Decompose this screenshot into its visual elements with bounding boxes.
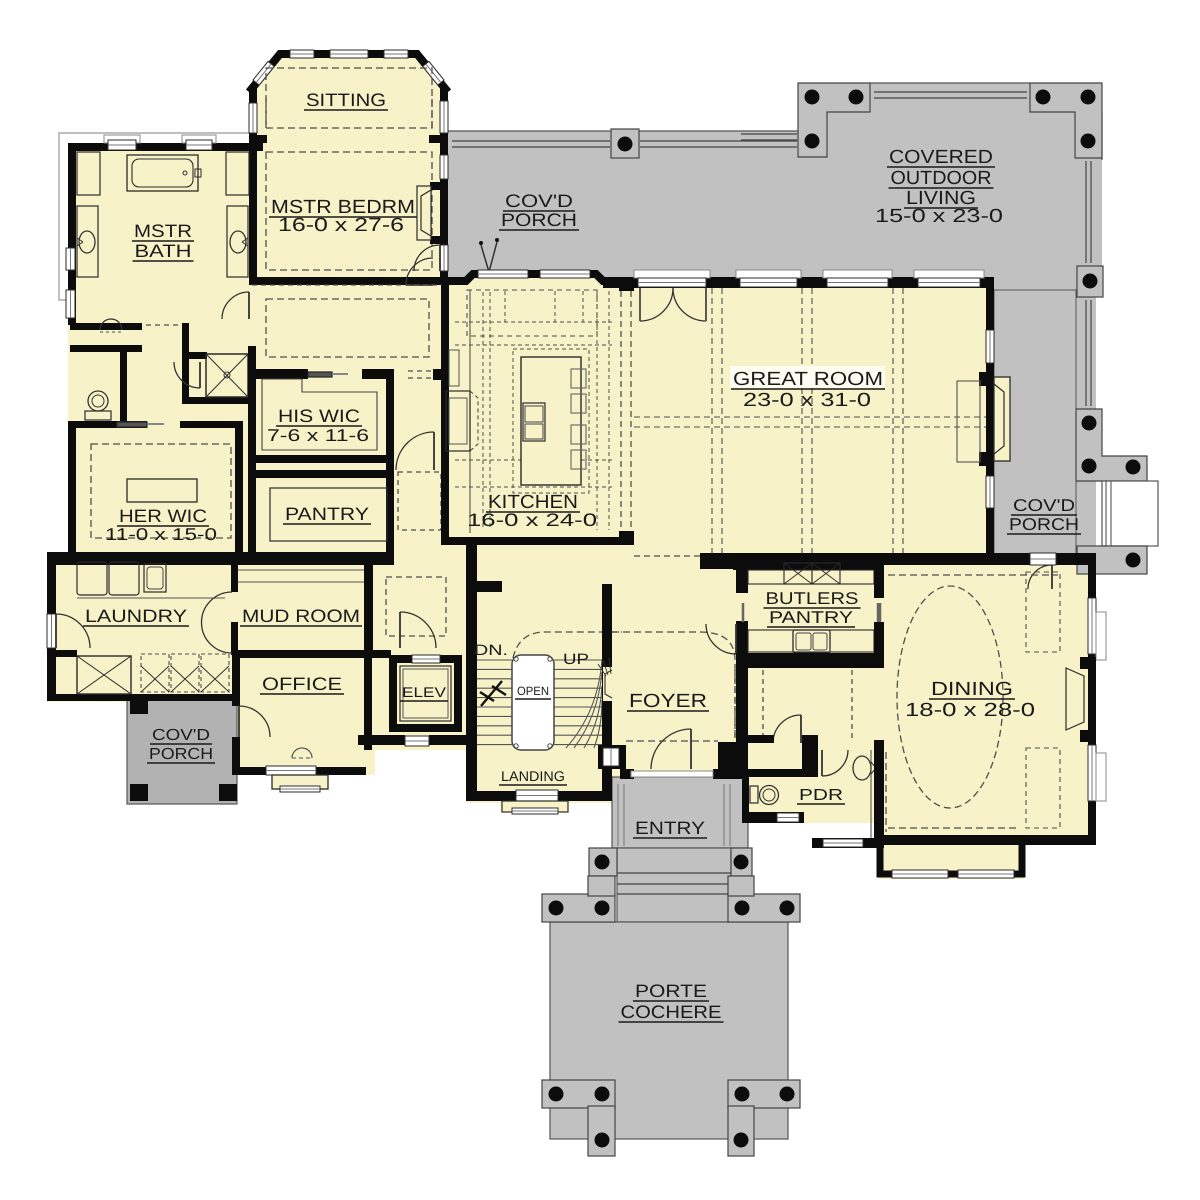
- svg-text:PORCH: PORCH: [149, 746, 213, 763]
- svg-text:COV'D: COV'D: [1013, 496, 1075, 515]
- svg-text:ELEV: ELEV: [402, 684, 447, 700]
- svg-text:23-0 x 31-0: 23-0 x 31-0: [743, 390, 871, 411]
- svg-text:11-0 x 15-0: 11-0 x 15-0: [105, 525, 217, 544]
- svg-text:PORTE: PORTE: [635, 981, 707, 1001]
- svg-text:COCHERE: COCHERE: [621, 1002, 722, 1022]
- svg-text:PDR: PDR: [799, 787, 843, 804]
- svg-text:HER WIC: HER WIC: [119, 506, 207, 526]
- svg-text:BATH: BATH: [135, 241, 192, 261]
- svg-text:LANDING: LANDING: [501, 768, 565, 784]
- svg-text:PANTRY: PANTRY: [769, 608, 853, 627]
- svg-text:HIS WIC: HIS WIC: [278, 406, 360, 426]
- svg-text:DINING: DINING: [931, 679, 1013, 700]
- svg-text:15-0 x 23-0: 15-0 x 23-0: [875, 206, 1003, 227]
- svg-text:16-0 x 24-0: 16-0 x 24-0: [467, 510, 597, 530]
- svg-text:PORCH: PORCH: [1009, 515, 1079, 534]
- svg-text:BUTLERS: BUTLERS: [766, 589, 859, 608]
- svg-text:OFFICE: OFFICE: [262, 674, 342, 694]
- svg-text:COV'D: COV'D: [152, 727, 210, 744]
- svg-text:LAUNDRY: LAUNDRY: [85, 606, 187, 626]
- svg-text:ENTRY: ENTRY: [635, 818, 705, 838]
- svg-text:UP: UP: [563, 651, 589, 668]
- svg-text:COV'D: COV'D: [505, 191, 573, 211]
- svg-text:FOYER: FOYER: [629, 691, 707, 712]
- svg-text:SITTING: SITTING: [306, 90, 386, 110]
- svg-text:16-0 x 27-6: 16-0 x 27-6: [278, 215, 404, 236]
- svg-text:PORCH: PORCH: [501, 210, 577, 230]
- svg-text:COVERED: COVERED: [889, 147, 993, 168]
- svg-text:18-0 x 28-0: 18-0 x 28-0: [905, 700, 1035, 721]
- svg-text:MUD ROOM: MUD ROOM: [242, 606, 360, 626]
- svg-text:DN.: DN.: [474, 642, 508, 659]
- svg-text:OUTDOOR: OUTDOOR: [891, 168, 992, 189]
- svg-text:OPEN: OPEN: [517, 684, 549, 698]
- svg-text:PANTRY: PANTRY: [285, 504, 369, 524]
- svg-text:GREAT ROOM: GREAT ROOM: [733, 369, 883, 390]
- svg-text:MSTR: MSTR: [134, 221, 192, 241]
- svg-text:7-6 x 11-6: 7-6 x 11-6: [267, 426, 369, 445]
